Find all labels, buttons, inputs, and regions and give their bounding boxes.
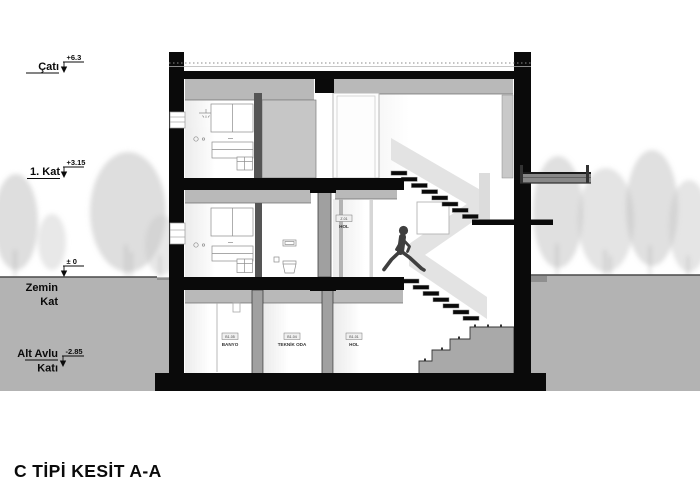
- room-code: B1.01: [349, 335, 358, 339]
- landing-guard: [479, 173, 490, 220]
- ground-left: [0, 277, 169, 391]
- roof-slab: [184, 71, 514, 79]
- level-label: Çatı: [38, 61, 59, 73]
- stair-landing: [472, 220, 553, 226]
- base-slab: [155, 373, 546, 391]
- floor-slab-ground: [184, 277, 404, 290]
- trees-left: [0, 152, 179, 277]
- wall-right: [514, 52, 531, 391]
- roof-beam: [315, 71, 334, 93]
- wall-finish-strip: [502, 95, 513, 178]
- stair-window: [417, 202, 449, 234]
- level-elevation: +3.15: [67, 158, 86, 167]
- room-code: Z.01: [340, 217, 347, 221]
- wall-left: [169, 52, 184, 375]
- room-code: B1.05: [225, 335, 234, 339]
- level-elevation: -2.85: [66, 347, 83, 356]
- ground-right: [531, 275, 700, 391]
- level-label: Zemin: [26, 282, 59, 294]
- trees-right: [533, 150, 700, 276]
- floor-slab-first: [184, 178, 404, 190]
- level-elevation: +6.3: [67, 53, 82, 62]
- room-name: TEKNİK ODA: [278, 341, 307, 347]
- level-label-2: Kat: [40, 296, 58, 308]
- level-elevation: ± 0: [67, 257, 77, 266]
- door-upper-hall: [333, 93, 379, 178]
- room-name: BANYO: [222, 342, 239, 347]
- level-marker-roof: Çatı +6.3: [26, 53, 84, 73]
- drawing-title: C TİPİ KESİT A-A: [14, 461, 162, 481]
- level-label: 1. Kat: [30, 166, 60, 178]
- architectural-section-sheet: Z.01 HOL B1.05 BANYO B1.04 TEKNİK ODA B1…: [0, 0, 700, 494]
- room-name: HOL: [339, 224, 349, 229]
- section-drawing: Z.01 HOL B1.05 BANYO B1.04 TEKNİK ODA B1…: [0, 0, 700, 494]
- level-label-2: Katı: [37, 363, 58, 375]
- roof-lines: [169, 63, 531, 67]
- wardrobe-block: [262, 100, 316, 178]
- level-label: Alt Avlu: [17, 348, 58, 360]
- room-name: HOL: [349, 342, 359, 347]
- level-marker-first-floor: 1. Kat +3.15: [27, 158, 85, 179]
- room-code: B1.04: [287, 335, 296, 339]
